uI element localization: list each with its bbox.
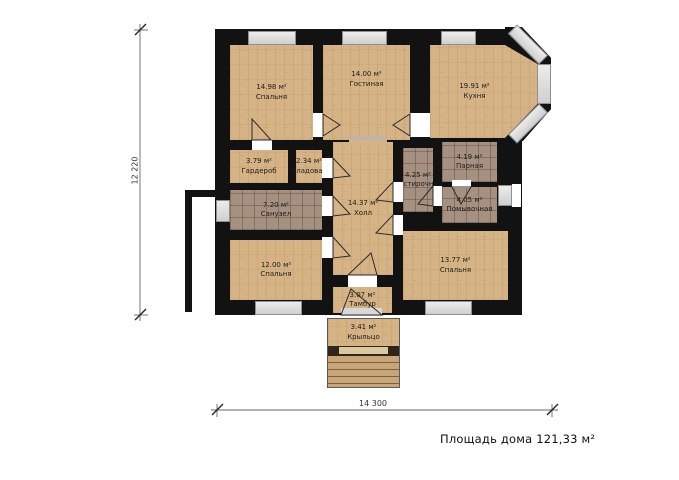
door-entrance <box>341 308 382 316</box>
room-label: 3.41 м²Крыльцо <box>347 323 380 341</box>
room-label: 19.91 м²Кухня <box>459 82 489 100</box>
room-porch: 3.41 м²Крыльцо <box>327 318 400 388</box>
door-bedroom1-wardrobe <box>252 140 272 150</box>
house-area-note: Площадь дома 121,33 м² <box>440 432 595 446</box>
room-pantry: 2.34 м²Кладовая <box>296 150 322 183</box>
door-hall-laundry <box>393 182 403 202</box>
window-kitchen-top <box>441 31 476 45</box>
dimension-horizontal-label: 14 300 <box>348 399 398 408</box>
room-label: 3.79 м²Гардероб <box>241 157 276 175</box>
room-bedroom-bottom-right: 13.77 м²Спальня <box>403 231 508 300</box>
room-bedroom-top-left: 14.98 м²Спальня <box>230 45 313 140</box>
porch-step-riser <box>328 346 399 356</box>
door-living-kitchen <box>410 113 430 137</box>
left-extension-wall-side <box>185 190 192 312</box>
door-hall-bedroom-bl <box>322 237 333 258</box>
window-bedroom-br-bottom <box>425 301 472 315</box>
window-bay-right <box>537 64 551 104</box>
room-bedroom-bottom-left: 12.00 м²Спальня <box>230 240 322 300</box>
room-label: 12.00 м²Спальня <box>260 261 291 279</box>
room-laundry: 4.25 м²Постирочная <box>403 148 433 212</box>
porch-step <box>339 347 388 354</box>
room-label: 7.20 м²Санузел <box>261 201 291 219</box>
living-hall-opening <box>349 137 387 145</box>
window-sill-right <box>512 184 521 207</box>
window-bathroom-left <box>216 200 230 222</box>
door-hall-tambour <box>348 275 377 287</box>
room-label: 3.07 м²Тамбур <box>349 291 376 309</box>
porch-stairs <box>328 356 399 387</box>
door-hall-bathroom <box>322 196 333 216</box>
door-bedroom1-living <box>313 113 323 137</box>
room-label: 14.37 м²Холл <box>348 199 378 217</box>
room-label: 14.00 м²Гостиная <box>349 70 383 88</box>
window-bedroom-bl-bottom <box>255 301 302 315</box>
room-hall: 14.37 м²Холл <box>333 142 393 275</box>
window-living-top <box>342 31 387 45</box>
door-hall-bedroom-br <box>393 215 403 235</box>
window-washing-right <box>498 185 512 206</box>
room-washing: 4.05 м²Помывочная <box>442 187 497 223</box>
porch-landing: 3.41 м²Крыльцо <box>328 319 399 346</box>
room-steam: 4.19 м²Парная <box>442 142 497 182</box>
room-wardrobe: 3.79 м²Гардероб <box>230 150 288 183</box>
floor-plan-canvas: 14.98 м²Спальня 14.00 м²Гостиная 19.91 м… <box>0 0 679 480</box>
room-label: 4.05 м²Помывочная <box>447 196 493 214</box>
door-washing-steam <box>452 180 471 188</box>
door-hall-pantry <box>322 158 333 178</box>
room-living: 14.00 м²Гостиная <box>323 45 410 140</box>
room-label: 13.77 м²Спальня <box>440 256 471 274</box>
room-label: 14.98 м²Спальня <box>256 83 287 101</box>
room-bathroom: 7.20 м²Санузел <box>230 190 322 230</box>
door-laundry-washing <box>433 186 442 206</box>
dimension-vertical-label: 12 220 <box>131 149 140 193</box>
room-label: 4.19 м²Парная <box>456 153 483 171</box>
window-bedroom-top <box>248 31 296 45</box>
